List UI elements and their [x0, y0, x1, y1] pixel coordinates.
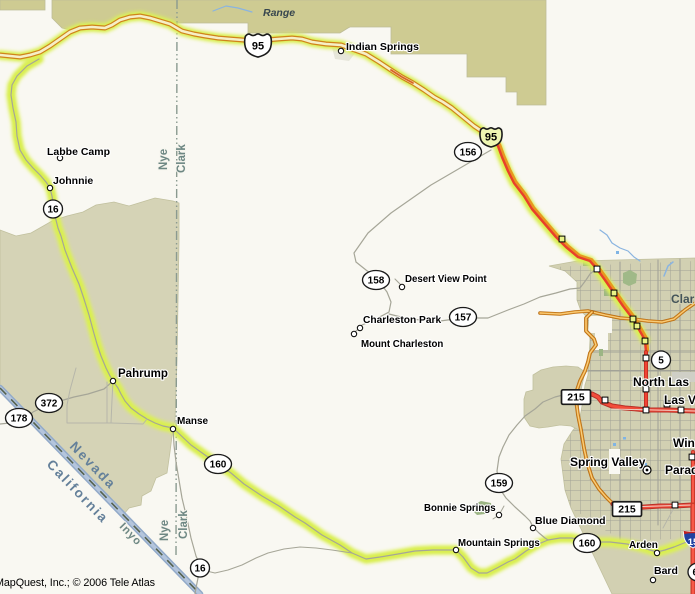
svg-text:Arden: Arden — [629, 540, 658, 551]
svg-text:North Las: North Las — [633, 375, 689, 389]
svg-text:160: 160 — [210, 460, 227, 471]
svg-text:Desert View Point: Desert View Point — [405, 274, 487, 285]
svg-text:16: 16 — [194, 564, 206, 575]
svg-text:Parad: Parad — [665, 463, 695, 477]
svg-text:95: 95 — [252, 40, 264, 52]
svg-text:159: 159 — [491, 479, 508, 490]
svg-text:16: 16 — [47, 205, 59, 216]
svg-text:Pahrump: Pahrump — [118, 368, 168, 380]
svg-text:Range: Range — [263, 7, 295, 19]
svg-text:178: 178 — [11, 414, 28, 425]
svg-text:Clark: Clark — [671, 292, 695, 306]
svg-text:5: 5 — [658, 356, 664, 367]
svg-text:156: 156 — [460, 148, 477, 159]
svg-text:MapQuest, Inc.; © 2006 Tele At: MapQuest, Inc.; © 2006 Tele Atlas — [0, 577, 156, 589]
svg-text:Mount Charleston: Mount Charleston — [361, 339, 443, 350]
svg-text:372: 372 — [41, 399, 58, 410]
svg-text:158: 158 — [368, 276, 385, 287]
svg-text:Bard: Bard — [654, 565, 678, 577]
svg-text:15: 15 — [688, 537, 695, 548]
svg-text:95: 95 — [485, 132, 497, 144]
svg-text:Clark: Clark — [178, 510, 190, 539]
svg-text:Bonnie Springs: Bonnie Springs — [424, 503, 496, 514]
svg-text:Charleston Park: Charleston Park — [363, 315, 441, 326]
svg-text:Win: Win — [673, 436, 695, 450]
svg-text:Manse: Manse — [177, 416, 209, 427]
svg-text:Johnnie: Johnnie — [53, 175, 93, 187]
svg-text:Mountain Springs: Mountain Springs — [458, 538, 540, 549]
svg-text:Labbe Camp: Labbe Camp — [47, 146, 110, 158]
svg-text:157: 157 — [455, 313, 472, 324]
svg-text:160: 160 — [579, 539, 596, 550]
svg-text:Spring Valley: Spring Valley — [570, 455, 646, 469]
svg-text:Nye: Nye — [158, 149, 170, 170]
svg-text:215: 215 — [567, 392, 585, 404]
svg-text:Nye: Nye — [159, 520, 171, 541]
svg-text:215: 215 — [618, 504, 636, 516]
svg-text:Las V: Las V — [664, 393, 695, 407]
svg-text:Clark: Clark — [176, 144, 188, 173]
svg-text:Blue Diamond: Blue Diamond — [535, 515, 606, 527]
svg-text:Indian Springs: Indian Springs — [346, 41, 419, 53]
